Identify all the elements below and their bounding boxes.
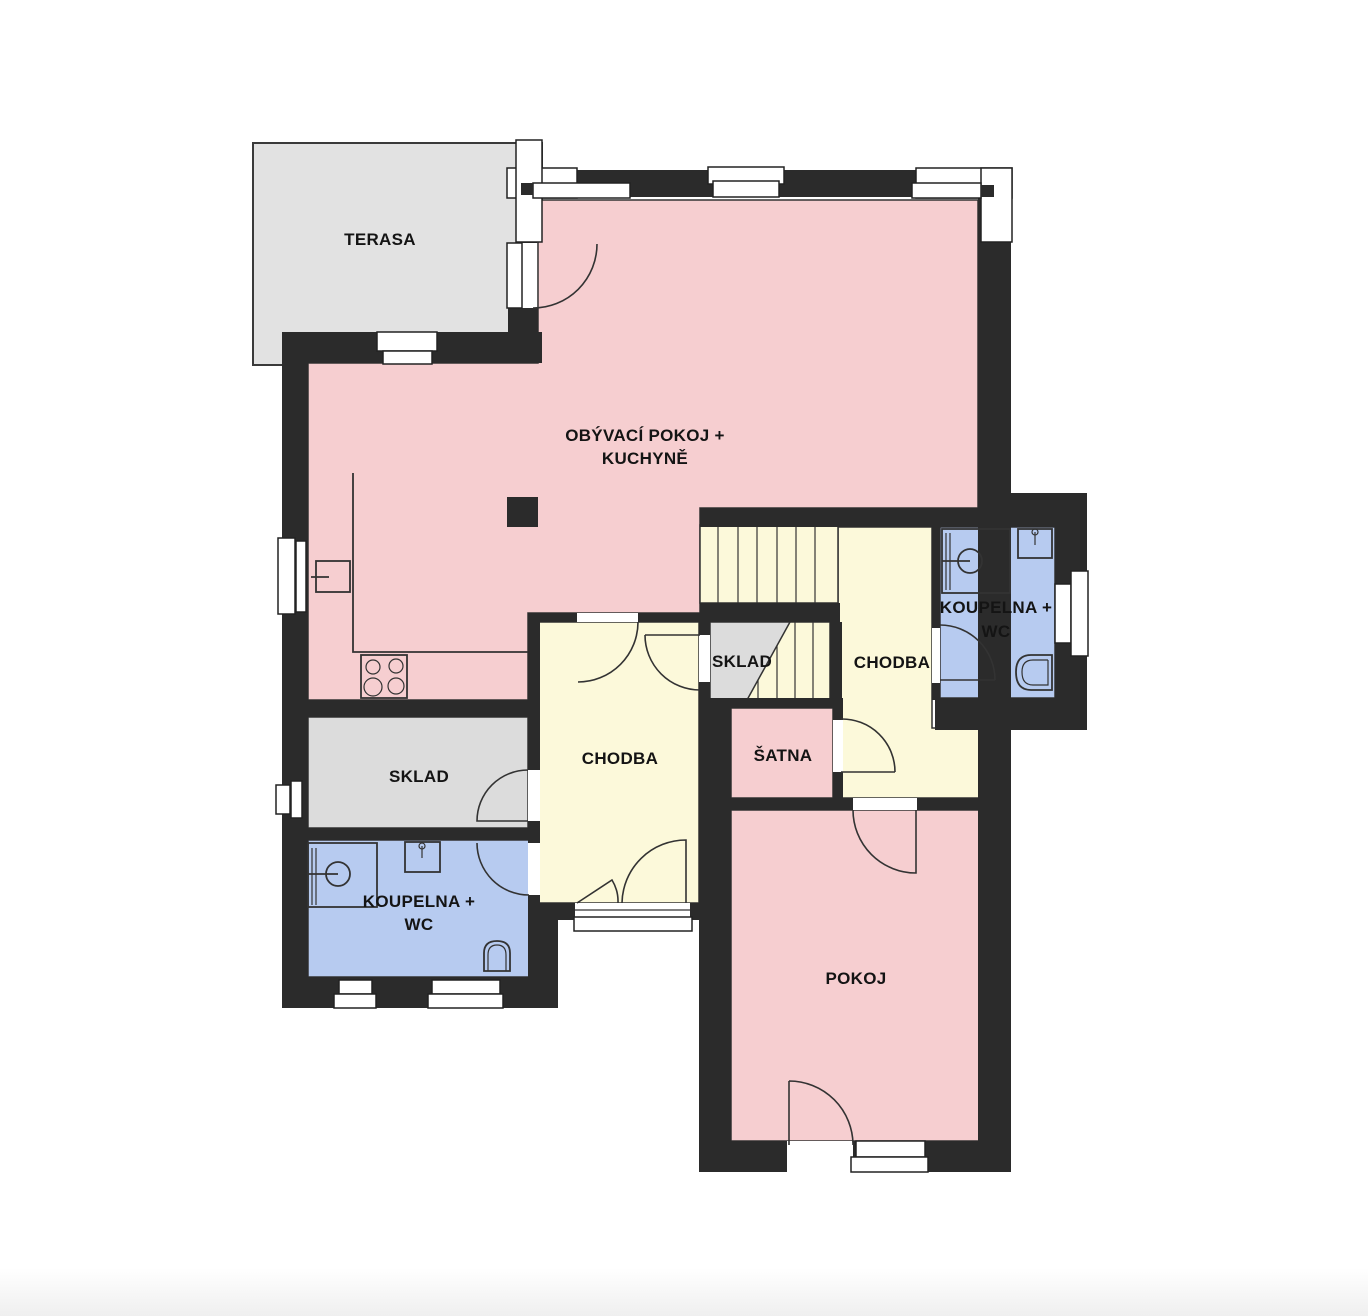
window: [339, 980, 372, 994]
window: [1071, 571, 1088, 656]
window: [296, 541, 306, 612]
window: [291, 781, 302, 818]
door-opening: [787, 1141, 853, 1172]
label-chodba-upper: CHODBA: [854, 653, 930, 672]
wall: [830, 622, 842, 708]
wall: [282, 332, 308, 1008]
door-opening: [528, 770, 540, 821]
column: [507, 497, 538, 527]
window: [856, 1141, 925, 1157]
door-opening: [853, 798, 917, 810]
window: [334, 994, 376, 1008]
wall: [528, 920, 558, 1008]
window-post: [521, 183, 533, 195]
door-threshold: [574, 917, 692, 931]
label-living-line2: KUCHYNĚ: [602, 449, 688, 468]
window: [428, 994, 503, 1008]
wall: [978, 197, 1011, 1172]
wall: [508, 308, 538, 334]
window: [432, 980, 500, 994]
wall: [935, 698, 1087, 730]
door-opening: [932, 628, 940, 683]
label-satna: ŠATNA: [754, 746, 813, 765]
window: [377, 332, 437, 351]
wall: [308, 700, 540, 717]
door-opening: [528, 843, 540, 895]
label-koupelna-upper-line2: WC: [982, 622, 1011, 641]
window: [981, 168, 1012, 242]
wall: [700, 508, 1010, 527]
label-koupelna-upper-line1: KOUPELNA +: [940, 598, 1052, 617]
door-frame: [507, 243, 522, 308]
door-opening: [833, 720, 843, 772]
label-pokoj: POKOJ: [825, 969, 886, 988]
label-living-line1: OBÝVACÍ POKOJ +: [565, 426, 725, 445]
window: [533, 183, 630, 198]
door-opening: [577, 613, 638, 622]
wall: [715, 798, 980, 810]
floor-plan-canvas: TERASA OBÝVACÍ POKOJ + KUCHYNĚ SKLAD CHO…: [0, 0, 1368, 1316]
wall: [777, 170, 918, 197]
window: [713, 181, 779, 197]
wall: [282, 977, 558, 1008]
window: [1055, 584, 1071, 643]
wall: [699, 700, 731, 1172]
window: [383, 351, 432, 364]
label-sklad-left: SKLAD: [389, 767, 449, 786]
label-terasa: TERASA: [344, 230, 416, 249]
window: [912, 183, 981, 198]
window: [851, 1157, 928, 1172]
wall: [1010, 493, 1087, 527]
footer-fade: [0, 1268, 1368, 1316]
wall: [700, 603, 840, 622]
wall: [699, 698, 843, 708]
label-koupelna-lower-line1: KOUPELNA +: [363, 892, 475, 911]
floor-plan-page: TERASA OBÝVACÍ POKOJ + KUCHYNĚ SKLAD CHO…: [0, 0, 1368, 1316]
window: [278, 538, 295, 614]
label-chodba-main: CHODBA: [582, 749, 658, 768]
window-post: [981, 185, 994, 197]
window: [276, 785, 290, 814]
label-koupelna-lower-line2: WC: [405, 915, 434, 934]
wall: [308, 828, 540, 840]
door-opening: [699, 635, 710, 682]
door-opening: [522, 243, 537, 308]
stairs-upper-run: [700, 525, 838, 603]
label-sklad-understair: SKLAD: [712, 652, 772, 671]
